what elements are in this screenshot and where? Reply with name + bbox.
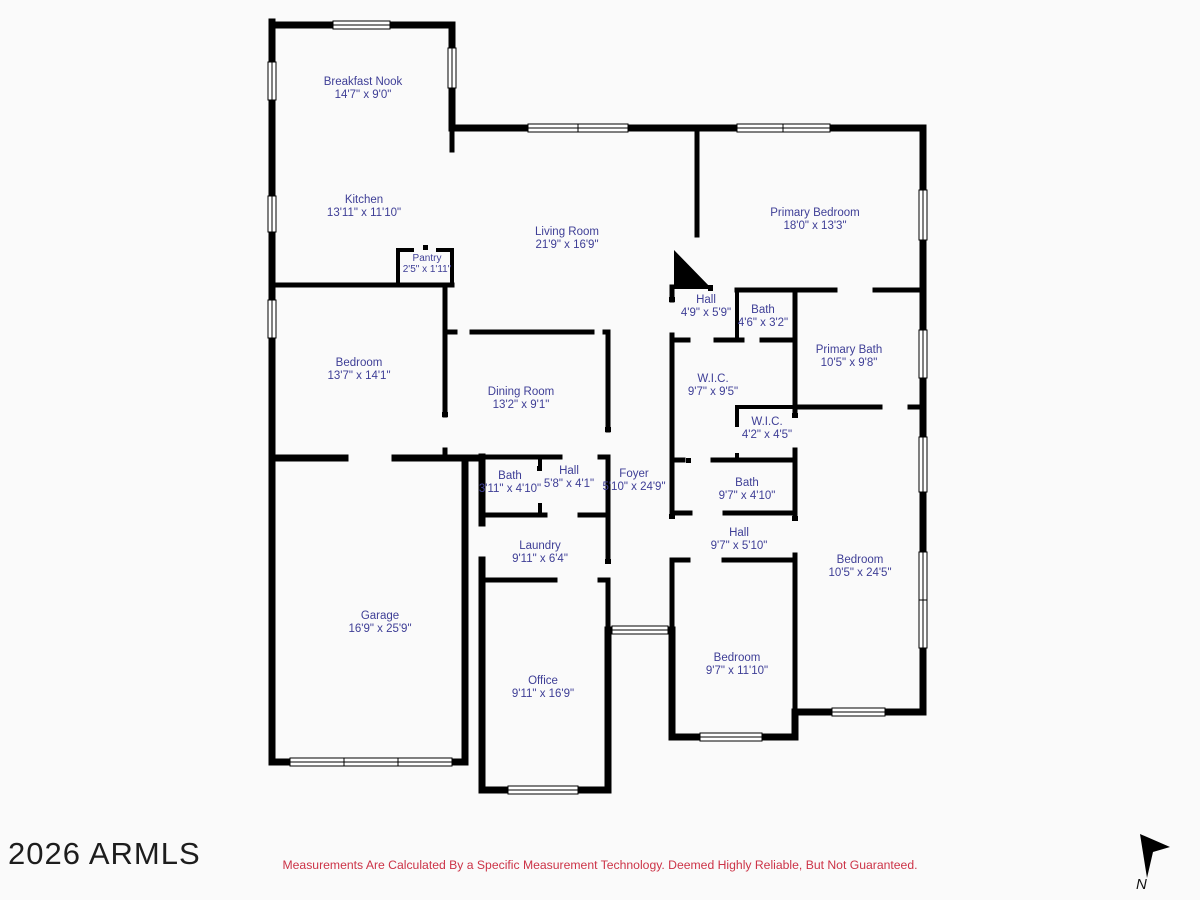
room-name: Bath	[719, 477, 776, 490]
room-dims: 13'2" x 9'1"	[488, 399, 554, 412]
floorplan-drawing	[0, 0, 1200, 900]
room-dims: 10'5" x 24'5"	[828, 567, 891, 580]
entry-door	[612, 626, 668, 634]
measurement-disclaimer: Measurements Are Calculated By a Specifi…	[0, 858, 1200, 872]
room-name: W.I.C.	[742, 416, 792, 429]
room-label-bath-2: Bath3'11" x 4'10"	[479, 470, 541, 496]
room-label-garage: Garage16'9" x 25'9"	[348, 610, 411, 636]
room-dims: 2'5" x 1'11"	[403, 264, 452, 275]
door-marks	[341, 245, 798, 564]
window	[448, 48, 456, 88]
room-label-breakfast-nook: Breakfast Nook14'7" x 9'0"	[324, 76, 403, 102]
room-name: Garage	[348, 610, 411, 623]
room-label-living-room: Living Room21'9" x 16'9"	[535, 226, 599, 252]
room-name: Laundry	[512, 540, 568, 553]
room-label-bedroom-3: Bedroom9'7" x 11'10"	[706, 652, 768, 678]
room-dims: 5'10" x 24'9"	[602, 481, 665, 494]
room-label-primary-bath: Primary Bath10'5" x 9'8"	[816, 344, 882, 370]
room-label-bedroom-1: Bedroom13'7" x 14'1"	[327, 357, 390, 383]
room-dims: 13'7" x 14'1"	[327, 370, 390, 383]
room-dims: 9'11" x 6'4"	[512, 553, 568, 566]
room-dims: 9'7" x 9'5"	[688, 386, 738, 399]
room-name: W.I.C.	[688, 373, 738, 386]
window	[268, 196, 276, 232]
window	[919, 190, 927, 240]
room-name: Bedroom	[327, 357, 390, 370]
room-dims: 9'7" x 11'10"	[706, 665, 768, 678]
room-label-kitchen: Kitchen13'11" x 11'10"	[327, 194, 401, 220]
room-label-bedroom-2: Bedroom10'5" x 24'5"	[828, 554, 891, 580]
room-dims: 18'0" x 13'3"	[770, 220, 859, 233]
room-label-dining-room: Dining Room13'2" x 9'1"	[488, 386, 554, 412]
room-name: Bedroom	[706, 652, 768, 665]
room-dims: 9'11" x 16'9"	[512, 688, 574, 701]
room-label-bath-1: Bath4'6" x 3'2"	[738, 304, 788, 330]
room-dims: 16'9" x 25'9"	[348, 623, 411, 636]
window	[700, 733, 762, 741]
room-dims: 9'7" x 4'10"	[719, 490, 776, 503]
garage-door	[290, 758, 452, 766]
room-dims: 21'9" x 16'9"	[535, 239, 599, 252]
room-name: Bath	[738, 304, 788, 317]
room-label-laundry: Laundry9'11" x 6'4"	[512, 540, 568, 566]
room-label-wic-2: W.I.C.4'2" x 4'5"	[742, 416, 792, 442]
room-label-bath-3: Bath9'7" x 4'10"	[719, 477, 776, 503]
angled-wall-corner	[674, 250, 712, 289]
room-label-primary-bedroom: Primary Bedroom18'0" x 13'3"	[770, 207, 859, 233]
room-dims: 13'11" x 11'10"	[327, 207, 401, 220]
north-arrow: N	[1128, 828, 1192, 898]
room-name: Bedroom	[828, 554, 891, 567]
room-name: Living Room	[535, 226, 599, 239]
room-label-hall-2: Hall5'8" x 4'1"	[544, 465, 594, 491]
room-name: Hall	[681, 294, 731, 307]
room-dims: 4'6" x 3'2"	[738, 317, 788, 330]
room-name: Pantry	[403, 253, 452, 264]
room-name: Primary Bath	[816, 344, 882, 357]
window	[333, 21, 390, 29]
room-label-foyer: Foyer5'10" x 24'9"	[602, 468, 665, 494]
room-label-pantry: Pantry2'5" x 1'11"	[403, 253, 452, 275]
room-name: Office	[512, 675, 574, 688]
window	[919, 552, 927, 648]
room-dims: 4'2" x 4'5"	[742, 429, 792, 442]
room-label-wic-1: W.I.C.9'7" x 9'5"	[688, 373, 738, 399]
room-name: Primary Bedroom	[770, 207, 859, 220]
room-name: Kitchen	[327, 194, 401, 207]
room-name: Breakfast Nook	[324, 76, 403, 89]
room-dims: 14'7" x 9'0"	[324, 89, 403, 102]
room-dims: 5'8" x 4'1"	[544, 478, 594, 491]
room-label-office: Office9'11" x 16'9"	[512, 675, 574, 701]
room-dims: 3'11" x 4'10"	[479, 483, 541, 496]
room-dims: 10'5" x 9'8"	[816, 357, 882, 370]
floorplan-page: Breakfast Nook14'7" x 9'0" Kitchen13'11"…	[0, 0, 1200, 900]
room-label-hall-3: Hall9'7" x 5'10"	[711, 527, 768, 553]
room-name: Hall	[544, 465, 594, 478]
window	[832, 708, 885, 716]
window	[737, 124, 830, 132]
room-label-hall-1: Hall4'9" x 5'9"	[681, 294, 731, 320]
window	[268, 300, 276, 338]
window	[508, 786, 578, 794]
room-dims: 9'7" x 5'10"	[711, 540, 768, 553]
room-name: Dining Room	[488, 386, 554, 399]
window	[919, 437, 927, 492]
window	[268, 62, 276, 100]
room-name: Hall	[711, 527, 768, 540]
room-dims: 4'9" x 5'9"	[681, 307, 731, 320]
room-name: Foyer	[602, 468, 665, 481]
window	[528, 124, 628, 132]
north-label: N	[1136, 876, 1147, 893]
room-name: Bath	[479, 470, 541, 483]
window	[919, 330, 927, 378]
